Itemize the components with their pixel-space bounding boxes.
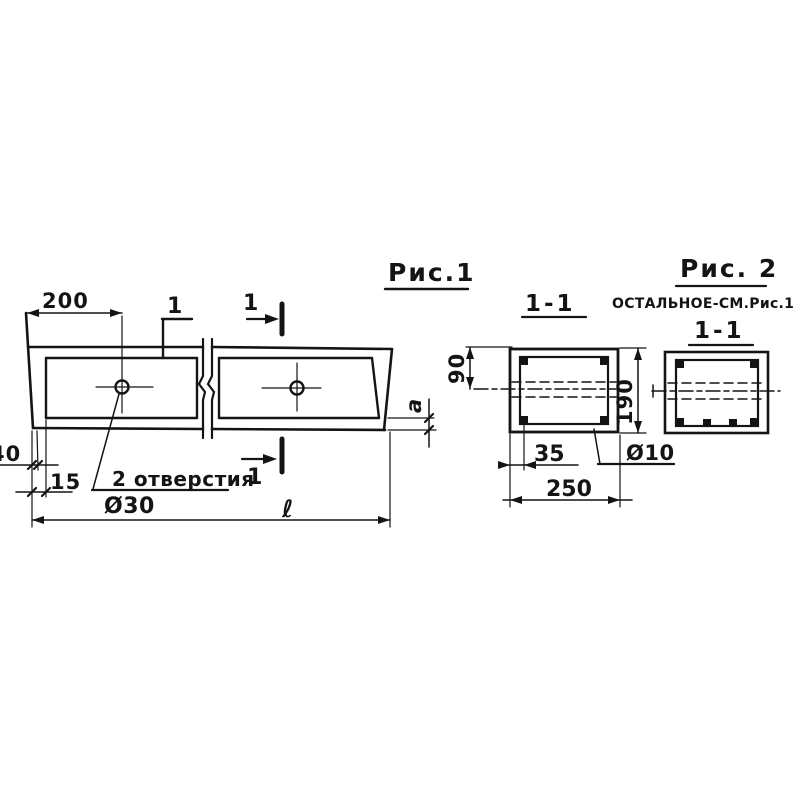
section-stirrup — [520, 357, 608, 424]
cut-digit: 1 — [243, 291, 258, 316]
cut-mark-top-left: 1 — [162, 294, 192, 358]
fig2-section-label: 1-1 — [694, 318, 745, 344]
rebar-callout: Ø10 — [594, 429, 675, 465]
drawing-sheet: Рис.1 1-1 Рис. 2 ОСТАЛЬНОЕ-СМ.Рис.1 1-1 — [0, 0, 800, 800]
dim-90-value: 90 — [445, 353, 469, 384]
section-1-1-label: 1-1 — [525, 291, 576, 317]
section-label-fig1: 1-1 — [522, 291, 586, 317]
dim-length-value: ℓ — [281, 495, 294, 523]
technical-drawing: Рис.1 1-1 Рис. 2 ОСТАЛЬНОЕ-СМ.Рис.1 1-1 — [0, 0, 800, 800]
dim-200-value: 200 — [42, 289, 89, 313]
break-line-left — [199, 339, 205, 438]
section-wires — [474, 382, 616, 397]
dim-190-value: 190 — [613, 378, 637, 425]
dim-a-value: a — [402, 398, 426, 413]
dim-a: a — [388, 398, 436, 447]
holes-note: 2 отверстия — [112, 467, 255, 491]
fig1-title: Рис.1 — [388, 258, 476, 287]
fig2-title-block: Рис. 2 ОСТАЛЬНОЕ-СМ.Рис.1 1-1 — [612, 254, 794, 345]
beam-front-view — [26, 313, 392, 438]
fig2-rebar-dots — [676, 360, 758, 426]
fig2-section-view — [652, 352, 780, 433]
cut-digit: 1 — [167, 294, 182, 319]
fig1-title-block: Рис.1 — [385, 258, 476, 289]
dim-35-value: 35 — [534, 442, 565, 467]
dim-200: 200 — [27, 289, 122, 317]
rebar-diameter: Ø10 — [626, 441, 675, 465]
dim-15-value: 15 — [50, 470, 81, 494]
holes-callout: 2 отверстия Ø30 — [92, 394, 255, 519]
dim-90: 90 — [445, 347, 512, 389]
fig2-stirrup — [676, 360, 758, 426]
hole-right — [262, 363, 321, 411]
fig2-title: Рис. 2 — [680, 254, 778, 283]
beam-left-edge — [26, 313, 33, 428]
hole-left — [96, 316, 153, 413]
break-line-right — [208, 339, 214, 438]
dim-250-value: 250 — [546, 477, 592, 502]
beam-bottom-right — [212, 429, 385, 430]
beam-top-right — [212, 347, 392, 349]
section-rebar-dots — [520, 357, 608, 424]
cut-mark-top-right: 1 — [243, 291, 282, 334]
holes-diameter: Ø30 — [104, 494, 155, 519]
beam-bottom-left — [33, 428, 203, 429]
dim-15: 15 — [16, 420, 81, 497]
dim-250: 250 — [503, 435, 632, 507]
dim-40-value: 40 — [0, 442, 21, 466]
section-1-1-view: 90 190 35 250 — [445, 347, 675, 507]
fig2-note: ОСТАЛЬНОЕ-СМ.Рис.1 — [612, 296, 794, 312]
fig2-wires — [652, 383, 780, 399]
